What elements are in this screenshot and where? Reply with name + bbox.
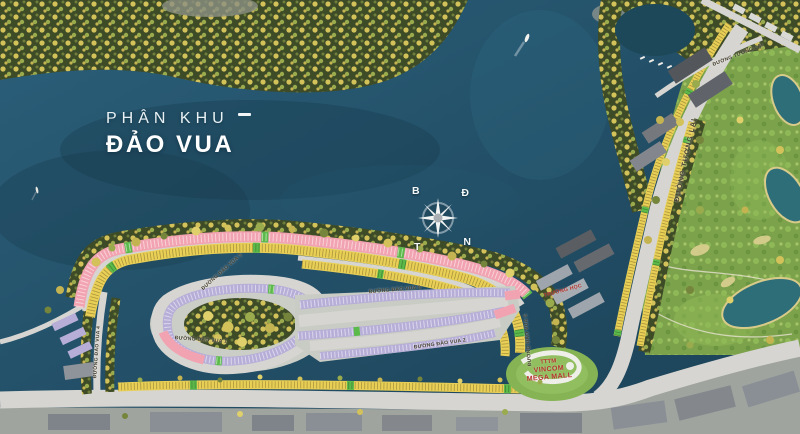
title-dash-icon	[238, 113, 251, 116]
compass-north-label: B	[412, 185, 420, 197]
compass-east-label: Đ	[461, 187, 469, 199]
zone-name: ĐẢO VUA	[106, 131, 251, 159]
masterplan-map: PHÂN KHU ĐẢO VUA B Đ T N ĐƯỜNG ĐẢO VUA 3…	[0, 0, 800, 434]
compass-rose: B Đ T N	[396, 186, 482, 254]
compass-south-label: N	[463, 236, 471, 248]
compass-west-label: T	[414, 241, 420, 253]
zone-kicker: PHÂN KHU	[106, 110, 229, 128]
zone-title: PHÂN KHU ĐẢO VUA	[106, 110, 251, 159]
